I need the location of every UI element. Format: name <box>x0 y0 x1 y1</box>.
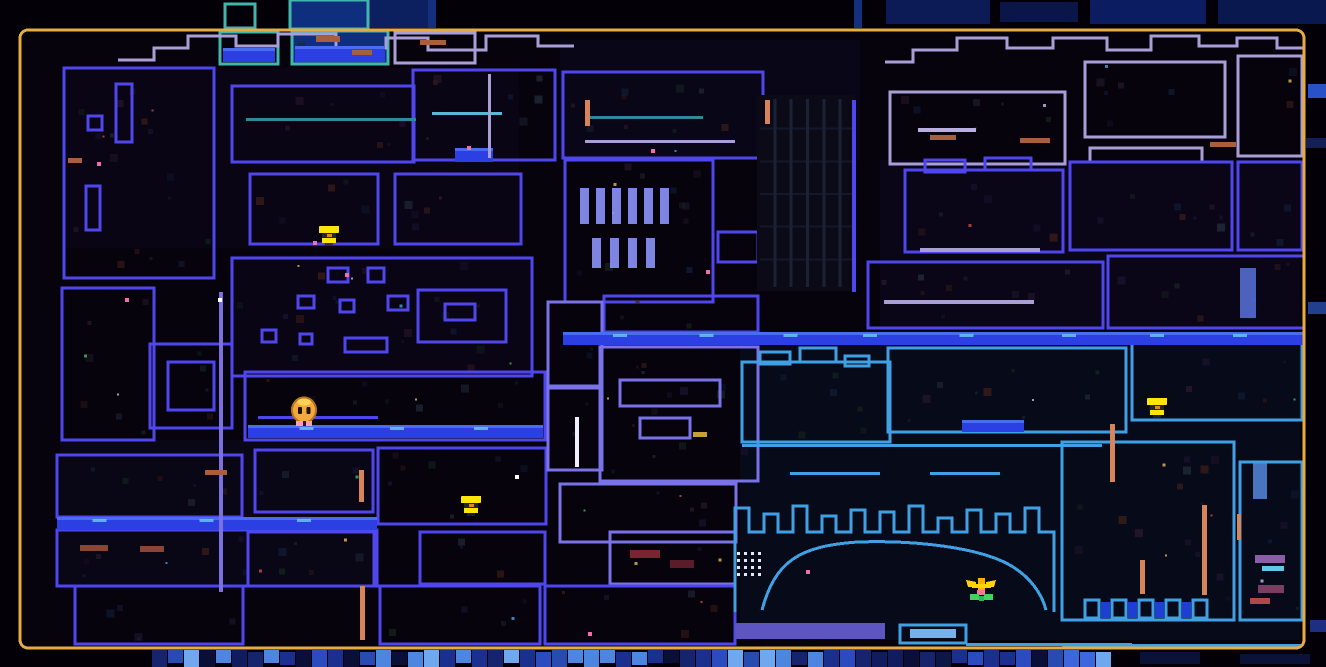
map-noise-speckle <box>1293 399 1295 401</box>
water-sparkle <box>92 519 106 522</box>
map-noise-speckle <box>1209 204 1214 209</box>
map-noise-speckle <box>388 481 392 485</box>
bottom-map-tile <box>184 650 199 667</box>
bottom-map-tile <box>568 650 583 663</box>
map-vent-dots <box>744 559 747 562</box>
bottom-map-tile <box>776 650 791 667</box>
map-noise-speckle <box>460 262 468 270</box>
map-noise-speckle <box>84 355 87 358</box>
map-pillar <box>644 188 653 224</box>
map-noise-speckle <box>355 553 363 561</box>
map-noise-speckle <box>1107 121 1113 127</box>
bottom-map-tile <box>248 652 263 667</box>
map-noise-speckle <box>343 179 348 184</box>
map-noise-speckle <box>205 388 208 391</box>
map-noise-speckle <box>515 381 518 384</box>
map-line <box>488 74 491 158</box>
map-noise-speckle <box>1001 102 1004 105</box>
map-noise-speckle <box>681 630 689 638</box>
map-noise-speckle <box>919 228 926 235</box>
map-noise-speckle <box>1085 395 1090 400</box>
pipe-marker <box>1140 560 1145 594</box>
map-noise-speckle <box>522 600 526 604</box>
map-noise-speckle <box>1174 203 1181 210</box>
map-noise-speckle <box>1050 234 1058 242</box>
map-noise-speckle <box>103 135 105 137</box>
map-noise-speckle <box>401 340 404 343</box>
map-noise-speckle <box>670 188 676 194</box>
map-noise-speckle <box>1075 546 1083 554</box>
map-noise-speckle <box>964 276 968 280</box>
map-region-tint <box>740 345 1300 640</box>
bottom-map-tile <box>168 650 183 663</box>
flower-leaf <box>979 596 984 601</box>
map-noise-speckle <box>461 385 469 393</box>
map-vent-dots <box>744 566 747 569</box>
map-noise-speckle <box>679 442 686 449</box>
map-noise-speckle <box>116 413 122 419</box>
map-region-tint <box>230 255 530 375</box>
map-dot <box>806 570 810 574</box>
map-noise-speckle <box>1105 65 1108 68</box>
map-noise-speckle <box>498 403 503 408</box>
map-vent-dots <box>751 566 754 569</box>
player-shine <box>297 399 311 406</box>
map-noise-speckle <box>426 137 429 140</box>
pipe-marker <box>585 100 590 126</box>
map-pillar <box>628 238 637 268</box>
map-line <box>852 100 856 292</box>
map-noise-speckle <box>686 267 692 273</box>
water-sparkle <box>474 427 488 430</box>
outside-map-block <box>1310 620 1326 632</box>
map-noise-speckle <box>496 456 501 461</box>
map-noise-speckle <box>587 353 593 359</box>
map-noise-speckle <box>923 395 931 403</box>
bottom-map-tile <box>1080 652 1095 667</box>
map-noise-speckle <box>1165 554 1167 556</box>
map-noise-speckle <box>830 389 837 396</box>
water-sparkle <box>297 519 311 522</box>
map-noise-speckle <box>330 103 333 106</box>
map-noise-speckle <box>941 315 945 319</box>
map-noise-speckle <box>1163 464 1166 467</box>
map-noise-speckle <box>1201 465 1209 473</box>
map-noise-speckle <box>701 601 703 603</box>
map-dot <box>218 298 222 302</box>
map-noise-speckle <box>110 154 118 162</box>
water-sparkle <box>299 427 313 430</box>
map-line <box>585 140 735 143</box>
map-noise-speckle <box>415 399 417 401</box>
map-noise-speckle <box>117 393 119 395</box>
map-noise-speckle <box>625 163 632 170</box>
map-noise-speckle <box>501 621 506 626</box>
map-pillar <box>612 188 621 224</box>
flower-leaf <box>984 594 993 600</box>
map-noise-speckle <box>652 455 655 458</box>
bottom-map-tile <box>792 652 807 665</box>
map-noise-speckle <box>404 201 412 209</box>
map-noise-speckle <box>620 316 624 320</box>
map-noise-speckle <box>604 595 609 600</box>
map-canvas[interactable] <box>0 0 1326 667</box>
outside-map-block <box>1308 302 1326 314</box>
map-noise-speckle <box>710 605 717 612</box>
map-noise-speckle <box>450 514 454 518</box>
map-dot <box>97 162 101 166</box>
bottom-map-tile <box>616 652 631 667</box>
map-dot <box>125 298 129 302</box>
map-noise-speckle <box>1288 80 1291 83</box>
map-noise-speckle <box>635 562 638 565</box>
map-noise-speckle <box>1161 291 1168 298</box>
map-detail-dash <box>1020 138 1050 143</box>
map-noise-speckle <box>698 547 702 551</box>
map-noise-speckle <box>509 362 511 364</box>
map-column-line <box>760 226 852 228</box>
bottom-map-tile <box>296 650 311 667</box>
map-noise-speckle <box>1043 104 1046 107</box>
map-noise-speckle <box>1263 398 1267 402</box>
map-noise-speckle <box>332 296 336 300</box>
water-surface <box>962 420 1024 423</box>
map-noise-speckle <box>377 142 383 148</box>
pipe-marker <box>1202 505 1207 595</box>
water-sparkle <box>783 334 797 337</box>
map-noise-speckle <box>335 301 338 304</box>
map-noise-speckle <box>152 109 154 111</box>
player-eye <box>307 407 311 414</box>
bottom-map-tile <box>344 650 359 667</box>
map-detail-dash <box>930 135 956 140</box>
map-noise-speckle <box>297 265 299 267</box>
map-noise-speckle <box>641 363 646 368</box>
map-noise-speckle <box>1286 263 1289 266</box>
map-noise-speckle <box>1238 392 1245 399</box>
map-noise-speckle <box>142 119 148 125</box>
map-noise-speckle <box>679 495 681 497</box>
map-noise-speckle <box>984 195 992 203</box>
bottom-map-tile <box>696 650 711 667</box>
map-noise-speckle <box>1033 224 1040 231</box>
map-noise-speckle <box>96 133 102 139</box>
map-noise-speckle <box>83 558 89 564</box>
bottom-map-tile <box>1032 650 1047 667</box>
map-noise-speckle <box>1177 484 1183 490</box>
map-noise-speckle <box>901 96 909 104</box>
bottom-map-tile <box>1096 652 1111 667</box>
bottom-map-tile <box>920 652 935 667</box>
map-noise-speckle <box>1195 552 1200 557</box>
map-noise-speckle <box>205 239 210 244</box>
flower-crossbar <box>972 584 991 588</box>
map-dot <box>515 475 519 479</box>
map-noise-speckle <box>688 591 695 598</box>
map-pillar <box>660 188 669 224</box>
bottom-map-tile <box>280 652 295 665</box>
map-noise-speckle <box>259 491 263 495</box>
map-noise-speckle <box>721 124 728 131</box>
bottom-map-tile <box>408 652 423 667</box>
map-noise-speckle <box>1028 293 1035 300</box>
map-noise-speckle <box>1286 101 1293 108</box>
map-noise-speckle <box>1277 239 1284 246</box>
map-noise-speckle <box>148 129 153 134</box>
map-noise-speckle <box>975 391 978 394</box>
map-water-gap <box>1128 602 1137 618</box>
map-noise-speckle <box>687 324 692 329</box>
map-noise-speckle <box>1118 82 1124 88</box>
map-noise-speckle <box>202 548 209 555</box>
map-noise-speckle <box>833 373 839 379</box>
map-pillar <box>610 238 619 268</box>
map-noise-speckle <box>411 211 418 218</box>
map-noise-speckle <box>424 208 430 214</box>
map-noise-speckle <box>282 471 289 478</box>
map-noise-speckle <box>150 257 153 260</box>
pipe-marker <box>359 470 364 502</box>
map-noise-speckle <box>278 548 286 556</box>
pipe-marker <box>1110 424 1115 482</box>
map-noise-speckle <box>389 629 396 636</box>
flame-cap <box>319 226 339 233</box>
map-noise-speckle <box>1118 276 1126 284</box>
map-noise-speckle <box>908 419 911 422</box>
map-noise-speckle <box>860 427 866 433</box>
map-noise-speckle <box>166 562 168 564</box>
map-noise-speckle <box>984 388 992 396</box>
map-noise-speckle <box>294 542 297 545</box>
map-noise-speckle <box>476 345 484 353</box>
map-noise-speckle <box>467 364 474 371</box>
map-noise-speckle <box>1065 270 1070 275</box>
flower-leaf <box>970 594 979 600</box>
map-noise-speckle <box>178 261 184 267</box>
map-noise-speckle <box>460 546 463 549</box>
map-noise-speckle <box>393 453 399 459</box>
bottom-map-tile <box>600 650 615 663</box>
map-noise-speckle <box>679 202 685 208</box>
map-noise-speckle <box>1168 89 1174 95</box>
map-noise-speckle <box>624 125 628 129</box>
map-noise-speckle <box>134 249 139 254</box>
map-line <box>219 292 223 592</box>
bottom-map-tile <box>1064 650 1079 667</box>
map-noise-speckle <box>1184 457 1190 463</box>
map-line <box>258 416 378 419</box>
map-noise-speckle <box>1175 283 1180 288</box>
map-noise-speckle <box>512 617 515 620</box>
map-column-line <box>760 193 852 195</box>
map-line <box>575 417 579 467</box>
map-noise-speckle <box>1197 316 1203 322</box>
outside-map-block <box>854 0 862 28</box>
map-dot <box>588 632 592 636</box>
map-noise-speckle <box>380 92 385 97</box>
map-noise-speckle <box>1250 233 1254 237</box>
map-noise-speckle <box>1284 204 1291 211</box>
map-noise-speckle <box>937 382 943 388</box>
bottom-map-tile <box>360 652 375 665</box>
map-noise-speckle <box>508 95 513 100</box>
map-noise-speckle <box>451 328 457 334</box>
map-water-gap <box>1101 602 1110 618</box>
map-vent-dots <box>751 559 754 562</box>
map-noise-speckle <box>435 297 440 302</box>
map-noise-speckle <box>433 75 441 83</box>
bottom-map-tile <box>936 652 951 667</box>
bottom-map-tile <box>440 650 455 667</box>
map-vent-dots <box>758 573 761 576</box>
map-noise-speckle <box>292 355 298 361</box>
map-vent-dots <box>751 573 754 576</box>
map-dot <box>651 149 655 153</box>
map-dot <box>467 146 471 150</box>
bottom-map-tile <box>904 650 919 667</box>
flame-core <box>469 504 474 507</box>
map-line <box>432 112 502 115</box>
map-vent-dots <box>751 552 754 555</box>
map-noise-speckle <box>632 424 635 427</box>
map-detail-dash <box>693 432 707 437</box>
pipe-marker <box>360 586 365 640</box>
map-noise-speckle <box>110 134 114 138</box>
bottom-map-tile <box>680 650 695 667</box>
map-fill-band <box>910 629 956 638</box>
water-sparkle <box>1233 334 1247 337</box>
map-line <box>790 472 880 475</box>
map-noise-speckle <box>279 569 285 575</box>
map-vent-dots <box>758 559 761 562</box>
map-noise-speckle <box>283 314 288 319</box>
bottom-map-tile <box>1000 652 1015 665</box>
map-detail-dash <box>420 40 446 45</box>
bottom-map-tile <box>328 650 343 667</box>
map-noise-speckle <box>429 462 436 469</box>
map-noise-speckle <box>1032 399 1034 401</box>
map-noise-speckle <box>351 278 353 280</box>
map-noise-speckle <box>107 609 115 617</box>
outside-room-outline <box>290 0 368 29</box>
map-column-line <box>760 258 852 260</box>
flame-base <box>467 513 475 516</box>
map-detail-dash <box>918 128 976 132</box>
map-vent-dots <box>758 566 761 569</box>
map-noise-speckle <box>82 574 85 577</box>
map-line <box>585 116 703 119</box>
bottom-map-tile <box>984 650 999 667</box>
map-noise-speckle <box>328 184 335 191</box>
bottom-map-tile <box>728 650 743 667</box>
map-noise-speckle <box>1183 467 1191 475</box>
map-noise-speckle <box>1261 579 1264 582</box>
map-noise-speckle <box>694 171 701 178</box>
map-noise-speckle <box>584 509 586 511</box>
map-noise-speckle <box>607 398 609 400</box>
map-noise-speckle <box>439 196 442 199</box>
map-pillar <box>646 238 655 268</box>
map-noise-speckle <box>1118 516 1126 524</box>
bottom-map-tile <box>872 652 887 667</box>
map-noise-speckle <box>780 374 786 380</box>
map-noise-speckle <box>1289 68 1297 76</box>
map-detail-dash <box>316 36 340 42</box>
map-noise-speckle <box>1012 291 1019 298</box>
bottom-map-tile <box>808 652 823 667</box>
map-noise-speckle <box>882 280 887 285</box>
map-noise-speckle <box>388 143 391 146</box>
map-noise-speckle <box>571 104 575 108</box>
map-noise-speckle <box>385 399 389 403</box>
map-noise-speckle <box>362 205 370 213</box>
flame-cap <box>1147 398 1167 405</box>
map-noise-speckle <box>141 431 145 435</box>
outside-map-block <box>1140 652 1200 664</box>
map-noise-speckle <box>577 270 582 275</box>
map-detail-dash <box>1250 598 1270 604</box>
map-noise-speckle <box>461 607 467 613</box>
map-pillar <box>628 188 637 224</box>
water-sparkle <box>613 334 627 337</box>
map-noise-speckle <box>458 539 465 546</box>
outside-map-block <box>1000 2 1078 22</box>
map-noise-speckle <box>497 571 504 578</box>
map-noise-speckle <box>1280 522 1287 529</box>
bottom-map-tile <box>824 650 839 667</box>
map-noise-speckle <box>799 431 806 438</box>
pipe-marker <box>765 100 770 124</box>
map-noise-speckle <box>535 95 543 103</box>
map-noise-speckle <box>635 300 639 304</box>
map-noise-speckle <box>562 591 565 594</box>
map-noise-speckle <box>285 125 290 130</box>
map-dot <box>706 270 710 274</box>
outside-map-block <box>1218 0 1326 24</box>
map-noise-speckle <box>636 365 639 368</box>
map-noise-speckle <box>167 173 174 180</box>
map-noise-speckle <box>259 570 262 573</box>
map-noise-speckle <box>622 94 627 99</box>
bottom-map-tile <box>1048 650 1063 667</box>
map-noise-speckle <box>914 107 921 114</box>
map-noise-speckle <box>412 223 419 230</box>
map-noise-speckle <box>280 217 286 223</box>
map-noise-speckle <box>699 519 706 526</box>
map-noise-speckle <box>239 537 244 542</box>
map-noise-speckle <box>122 478 128 484</box>
bottom-map-tile <box>840 650 855 667</box>
map-noise-speckle <box>355 476 358 479</box>
map-noise-speckle <box>939 212 943 216</box>
map-noise-speckle <box>1046 117 1051 122</box>
map-water-gap <box>1155 602 1164 618</box>
map-line <box>884 300 1034 304</box>
map-noise-speckle <box>699 89 704 94</box>
bottom-map-tile <box>648 650 663 663</box>
map-noise-speckle <box>81 401 88 408</box>
player-feet-gap <box>303 421 306 426</box>
map-pillar <box>580 188 589 224</box>
water-sparkle <box>1150 334 1164 337</box>
flame-core <box>327 234 332 237</box>
map-noise-speckle <box>683 219 688 224</box>
bottom-map-tile <box>1016 650 1031 667</box>
map-detail-dash <box>670 560 694 568</box>
map-noise-speckle <box>1011 369 1014 372</box>
bottom-map-tile <box>216 650 231 663</box>
map-noise-speckle <box>1186 386 1192 392</box>
